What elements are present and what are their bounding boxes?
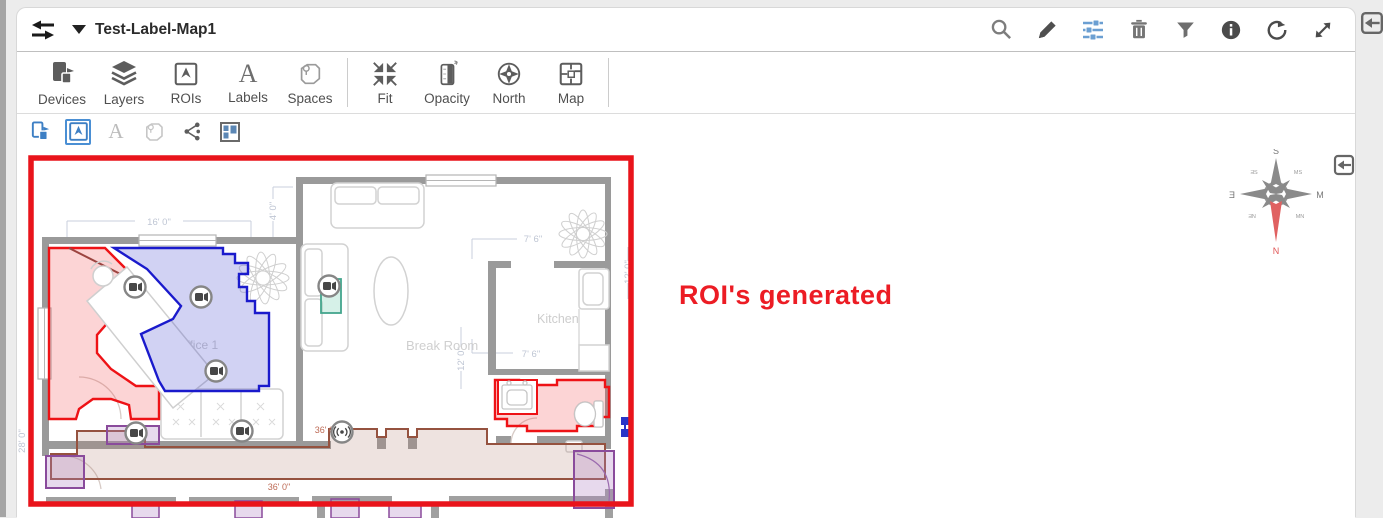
toolbar-label: Fit — [378, 91, 393, 106]
toolbar-labels-button[interactable]: A Labels — [217, 52, 279, 113]
dim-office-top: 16' 0" — [147, 217, 171, 228]
draw-label-button[interactable]: A — [103, 119, 129, 145]
compass-tl-label: ƎS — [1250, 170, 1258, 176]
toolbar-label: Labels — [228, 90, 268, 105]
settings-sliders-icon[interactable] — [1081, 18, 1105, 42]
roi-generated-annotation: ROI's generated — [679, 280, 892, 311]
dim-office-side: 4' 0" — [268, 202, 279, 220]
toolbar-rois-button[interactable]: ROIs — [155, 52, 217, 113]
window-panes-icon — [219, 121, 241, 143]
layers-icon — [109, 59, 139, 89]
room-label-kitchen: Kitchen — [537, 312, 579, 326]
share-icon — [182, 121, 203, 142]
device-camera-icon[interactable] — [125, 277, 146, 298]
toolbar-map-button[interactable]: Map — [540, 52, 602, 113]
north-icon — [495, 60, 523, 88]
draw-roi-icon — [68, 121, 89, 142]
map-icon — [557, 60, 585, 88]
map-selector-caret-down-icon[interactable] — [72, 25, 86, 34]
draw-space-icon — [142, 120, 166, 144]
toolbar-label: Map — [558, 91, 584, 106]
device-camera-icon[interactable] — [319, 276, 340, 297]
toolbar-separator — [347, 58, 348, 107]
draw-toolbar: A — [17, 114, 1355, 150]
reset-view-icon[interactable] — [1265, 18, 1289, 42]
toolbar-devices-button[interactable]: Devices — [31, 52, 93, 113]
toolbar-fit-button[interactable]: Fit — [354, 52, 416, 113]
draw-device-button[interactable] — [27, 119, 53, 145]
share-button[interactable] — [179, 119, 205, 145]
dim-corridor-bottom: 36' 0" — [268, 482, 290, 492]
expand-icon[interactable] — [1311, 18, 1335, 42]
opacity-icon — [433, 60, 461, 88]
map-title[interactable]: Test-Label-Map1 — [95, 21, 216, 39]
spaces-icon — [296, 60, 324, 88]
roi-purple-door-2[interactable] — [46, 456, 84, 488]
compass-right-label: M — [1316, 190, 1324, 200]
fit-icon — [371, 60, 399, 88]
edit-icon[interactable] — [1035, 18, 1059, 42]
toolbar-label: ROIs — [171, 91, 202, 106]
toolbar-opacity-button[interactable]: Opacity — [416, 52, 478, 113]
filter-icon[interactable] — [1173, 18, 1197, 42]
window-edge-strip — [0, 0, 6, 517]
window-panes-button[interactable] — [217, 119, 243, 145]
toolbar-label: Spaces — [287, 91, 332, 106]
toolbar-spaces-button[interactable]: Spaces — [279, 52, 341, 113]
dim-kitchen-bottom: 7' 6" — [522, 349, 540, 360]
collapse-panel-icon[interactable] — [1360, 11, 1383, 35]
map-canvas[interactable]: 16' 0" 4' 0" 7' 6" 7' 6" 12' 0" 12' 0" 2… — [17, 149, 1355, 518]
device-camera-icon[interactable] — [126, 423, 147, 444]
main-toolbar: Devices Layers ROIs A Labels — [17, 52, 1355, 114]
dim-left-wall: 28' 0" — [17, 429, 28, 453]
compass-br-label: MN — [1296, 214, 1305, 220]
header: Test-Label-Map1 — [17, 8, 1355, 52]
search-icon[interactable] — [989, 18, 1013, 42]
compass-bl-label: ƎN — [1248, 214, 1256, 220]
roi-purple-partial[interactable] — [389, 505, 421, 518]
toolbar-label: North — [492, 91, 525, 106]
map-panel: Test-Label-Map1 — [16, 7, 1356, 517]
draw-space-button[interactable] — [141, 119, 167, 145]
bathroom-toilet — [575, 401, 604, 427]
collapse-panel-icon[interactable] — [1333, 154, 1355, 176]
compass-rose: S M Ǝ N ƎS MS ƎN MN — [1229, 149, 1324, 256]
device-camera-icon[interactable] — [191, 287, 212, 308]
toolbar-north-button[interactable]: North — [478, 52, 540, 113]
floor-plan: 16' 0" 4' 0" 7' 6" 7' 6" 12' 0" 12' 0" 2… — [17, 149, 1355, 518]
delete-icon[interactable] — [1127, 18, 1151, 42]
compass-tr-label: MS — [1294, 170, 1303, 176]
device-camera-icon[interactable] — [206, 361, 227, 382]
draw-device-icon — [29, 120, 52, 143]
device-camera-icon[interactable] — [232, 421, 253, 442]
toolbar-separator — [608, 58, 609, 107]
room-label-break-room: Break Room — [406, 338, 478, 353]
compass-top-label: S — [1273, 149, 1279, 156]
toolbar-label: Opacity — [424, 91, 470, 106]
compass-bottom-label: N — [1273, 246, 1280, 256]
info-icon[interactable] — [1219, 18, 1243, 42]
dim-kitchen-top: 7' 6" — [524, 234, 542, 245]
device-sensor-icon[interactable] — [332, 422, 353, 443]
toolbar-label: Devices — [38, 92, 86, 107]
toolbar-layers-button[interactable]: Layers — [93, 52, 155, 113]
toolbar-label: Layers — [104, 92, 145, 107]
labels-icon: A — [239, 61, 258, 87]
swap-maps-icon[interactable] — [30, 19, 56, 41]
draw-label-icon: A — [108, 121, 123, 142]
header-actions — [989, 18, 1335, 42]
rois-icon — [172, 60, 200, 88]
devices-icon — [47, 59, 77, 89]
draw-roi-button[interactable] — [65, 119, 91, 145]
compass-left-label: Ǝ — [1229, 190, 1235, 200]
compass-needle — [1270, 201, 1282, 242]
